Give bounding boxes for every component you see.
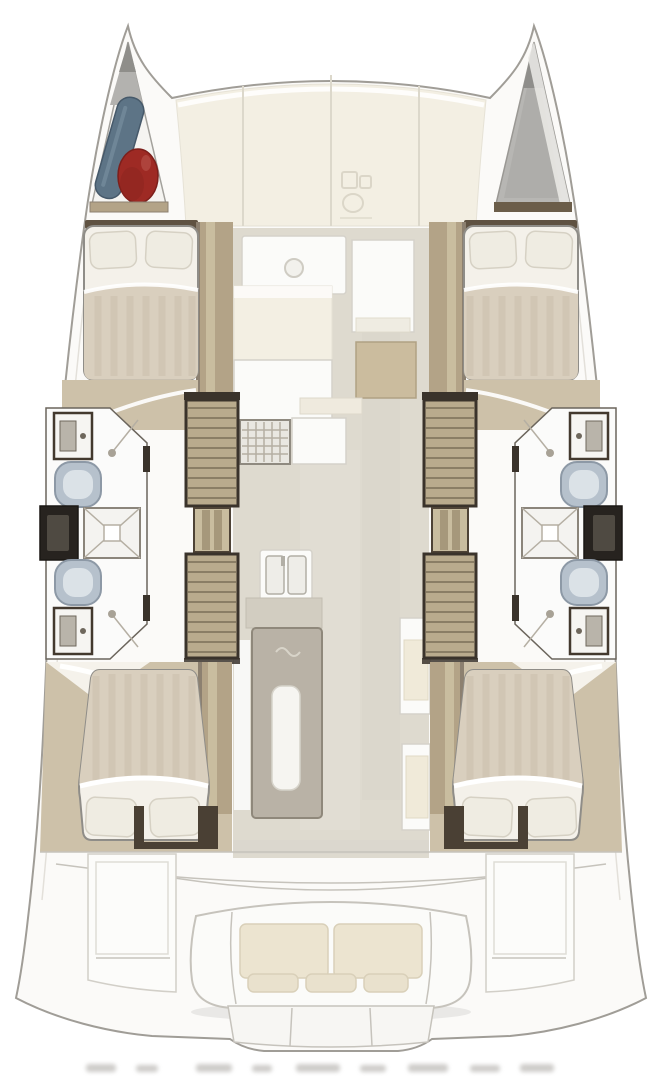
cabinet-tan [356,342,416,398]
floorplan-drawing [0,0,662,1080]
starboard-aft-cabin [430,662,622,852]
door-frame [143,595,150,621]
galley-ledge [300,398,362,414]
shower-pan [84,508,140,558]
port-cockpit-platform [88,854,176,992]
door-frame [143,446,150,472]
locker-sill [90,202,168,212]
vanity-dark [584,506,622,560]
toilet-forward [55,462,101,507]
transom-steps [228,1006,434,1047]
sink-forward [54,413,92,459]
sink-aft [570,608,608,654]
toilet-aft [561,560,607,605]
bench-left [234,640,250,810]
port-forward-wall [196,222,233,400]
port-forward-bed [84,226,198,385]
counter-beside-stove [292,418,346,464]
starboard-forward-wall [429,222,466,400]
catamaran-floorplan [0,0,662,1080]
shower-pan [522,508,578,558]
locker-sill [494,202,572,212]
buoy-red [118,149,158,203]
port-aft-cabin [40,662,232,852]
cropped-caption-artifact [86,1064,554,1072]
counter-return [246,598,322,628]
forward-hatch [285,259,303,277]
port-heads [40,408,150,659]
salon [233,228,430,858]
toilet-aft [55,560,101,605]
toilet-forward [561,462,607,507]
salon-table [252,628,322,818]
foredeck [176,75,486,226]
sink-forward [570,413,608,459]
starboard-heads [512,408,622,659]
salon-seat-right-2 [402,744,430,830]
starboard-forward-bed [464,226,578,385]
starboard-cockpit-platform [486,854,574,992]
cockpit-bench [191,902,472,1008]
vanity-dark [40,506,78,560]
door-frame [512,595,519,621]
galley-sink [260,550,312,602]
stove [240,420,290,464]
sink-aft [54,608,92,654]
door-frame [512,446,519,472]
